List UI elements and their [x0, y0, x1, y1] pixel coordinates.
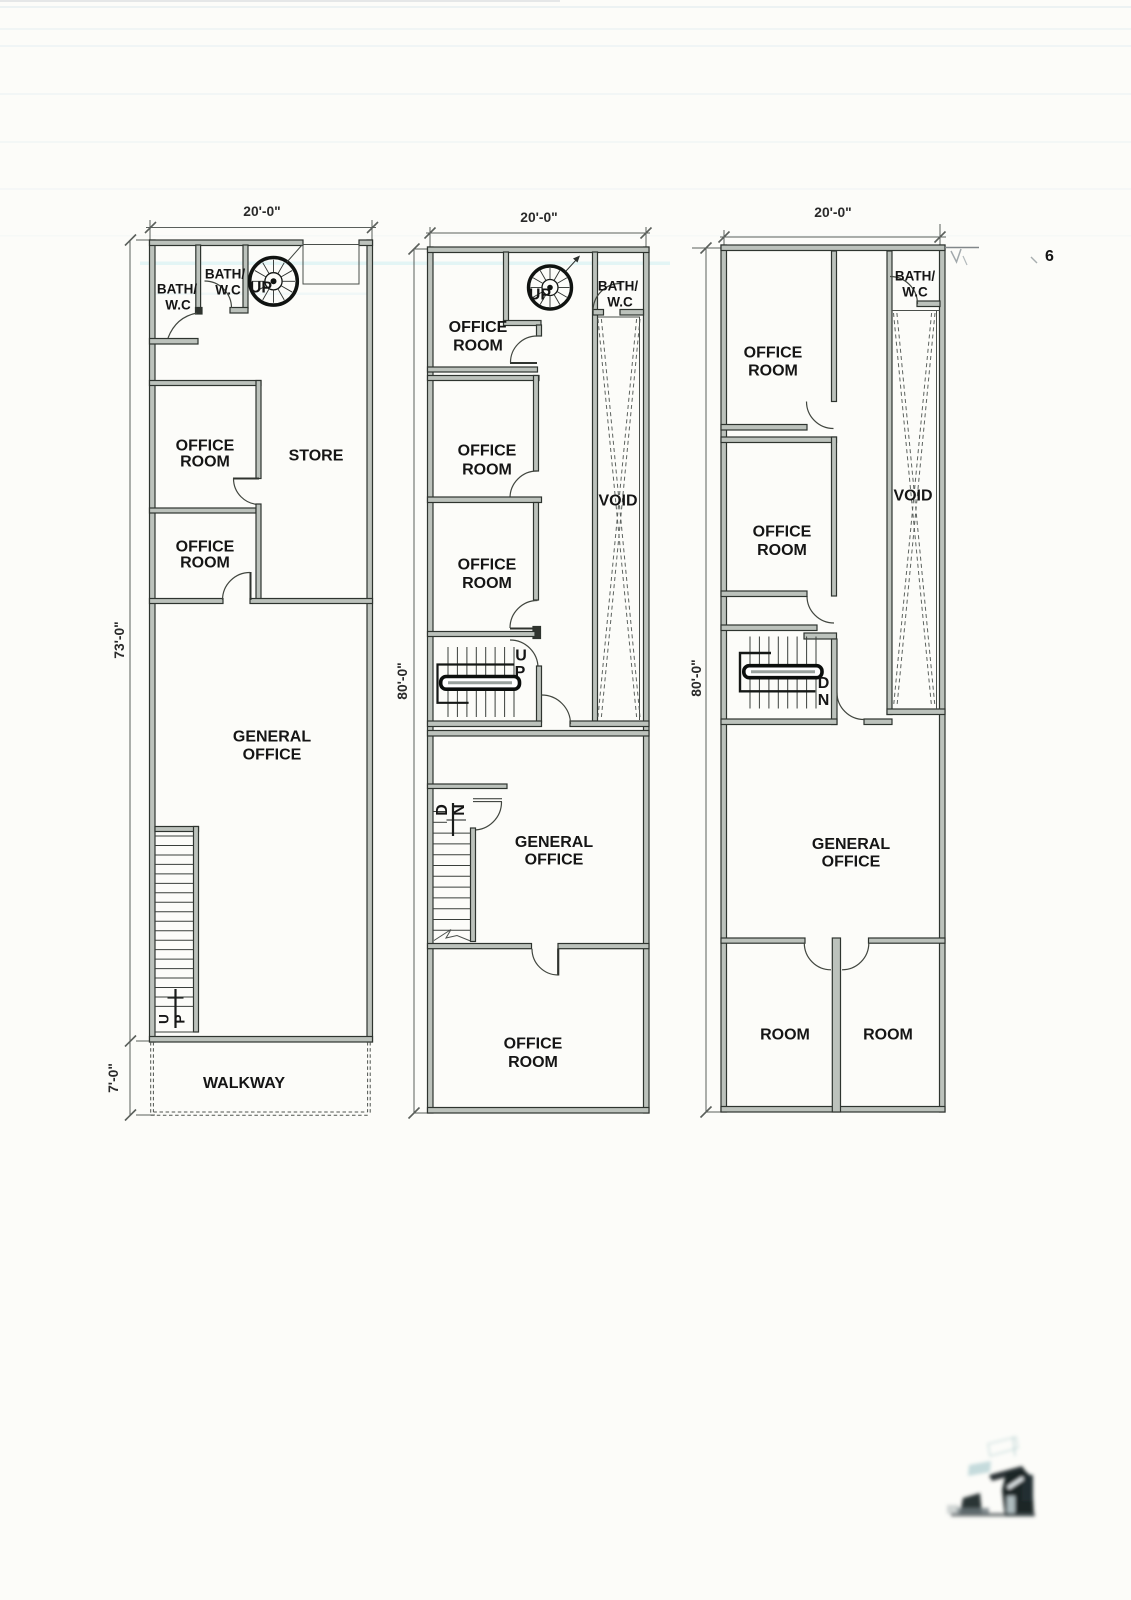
svg-text:GENERAL: GENERAL	[515, 834, 593, 851]
svg-text:ROOM: ROOM	[462, 462, 512, 479]
svg-text:UP: UP	[529, 287, 552, 304]
svg-text:OFFICE: OFFICE	[504, 1036, 563, 1053]
svg-text:OFFICE: OFFICE	[753, 524, 812, 541]
svg-text:OFFICE: OFFICE	[744, 345, 803, 362]
svg-text:U: U	[157, 1014, 172, 1024]
svg-text:20'-0": 20'-0"	[520, 210, 557, 225]
svg-text:7'-0": 7'-0"	[106, 1063, 121, 1093]
svg-text:D: D	[818, 675, 830, 692]
svg-text:D: D	[434, 804, 451, 816]
svg-text:20'-0": 20'-0"	[243, 204, 280, 219]
svg-text:BATH/: BATH/	[205, 267, 245, 282]
svg-text:ROOM: ROOM	[462, 575, 512, 592]
svg-text:OFFICE: OFFICE	[458, 557, 517, 574]
svg-text:ROOM: ROOM	[453, 338, 503, 355]
svg-text:OFFICE: OFFICE	[458, 443, 517, 460]
svg-text:OFFICE: OFFICE	[176, 539, 235, 556]
svg-text:P: P	[173, 1014, 188, 1023]
svg-text:OFFICE: OFFICE	[243, 747, 302, 764]
svg-text:OFFICE: OFFICE	[822, 854, 881, 871]
svg-text:ROOM: ROOM	[760, 1027, 810, 1044]
svg-text:U: U	[515, 648, 527, 665]
svg-text:VOID: VOID	[598, 493, 637, 510]
svg-text:VOID: VOID	[893, 488, 932, 505]
svg-text:BATH/: BATH/	[157, 282, 197, 297]
svg-text:STORE: STORE	[289, 448, 344, 465]
svg-text:W.C: W.C	[165, 298, 191, 313]
svg-text:UP: UP	[250, 280, 273, 297]
svg-text:73'-0": 73'-0"	[112, 621, 127, 658]
svg-text:GENERAL: GENERAL	[233, 729, 311, 746]
svg-text:BATH/: BATH/	[895, 269, 935, 284]
svg-text:GENERAL: GENERAL	[812, 836, 890, 853]
svg-text:80'-0": 80'-0"	[689, 659, 704, 696]
svg-text:ROOM: ROOM	[180, 454, 230, 471]
svg-text:ROOM: ROOM	[757, 542, 807, 559]
svg-text:ROOM: ROOM	[508, 1054, 558, 1071]
svg-text:BATH/: BATH/	[598, 279, 638, 294]
svg-text:OFFICE: OFFICE	[449, 319, 508, 336]
svg-text:20'-0": 20'-0"	[814, 205, 851, 220]
svg-text:ROOM: ROOM	[863, 1027, 913, 1044]
svg-text:80'-0": 80'-0"	[395, 662, 410, 699]
svg-text:W.C: W.C	[607, 295, 633, 310]
svg-text:WALKWAY: WALKWAY	[203, 1075, 285, 1092]
svg-text:W.C: W.C	[902, 285, 928, 300]
svg-text:OFFICE: OFFICE	[176, 438, 235, 455]
svg-text:N: N	[818, 692, 830, 709]
svg-text:W.C: W.C	[215, 283, 241, 298]
svg-text:OFFICE: OFFICE	[525, 852, 584, 869]
svg-text:ROOM: ROOM	[180, 555, 230, 572]
svg-text:6: 6	[1045, 248, 1054, 265]
svg-text:ROOM: ROOM	[748, 363, 798, 380]
